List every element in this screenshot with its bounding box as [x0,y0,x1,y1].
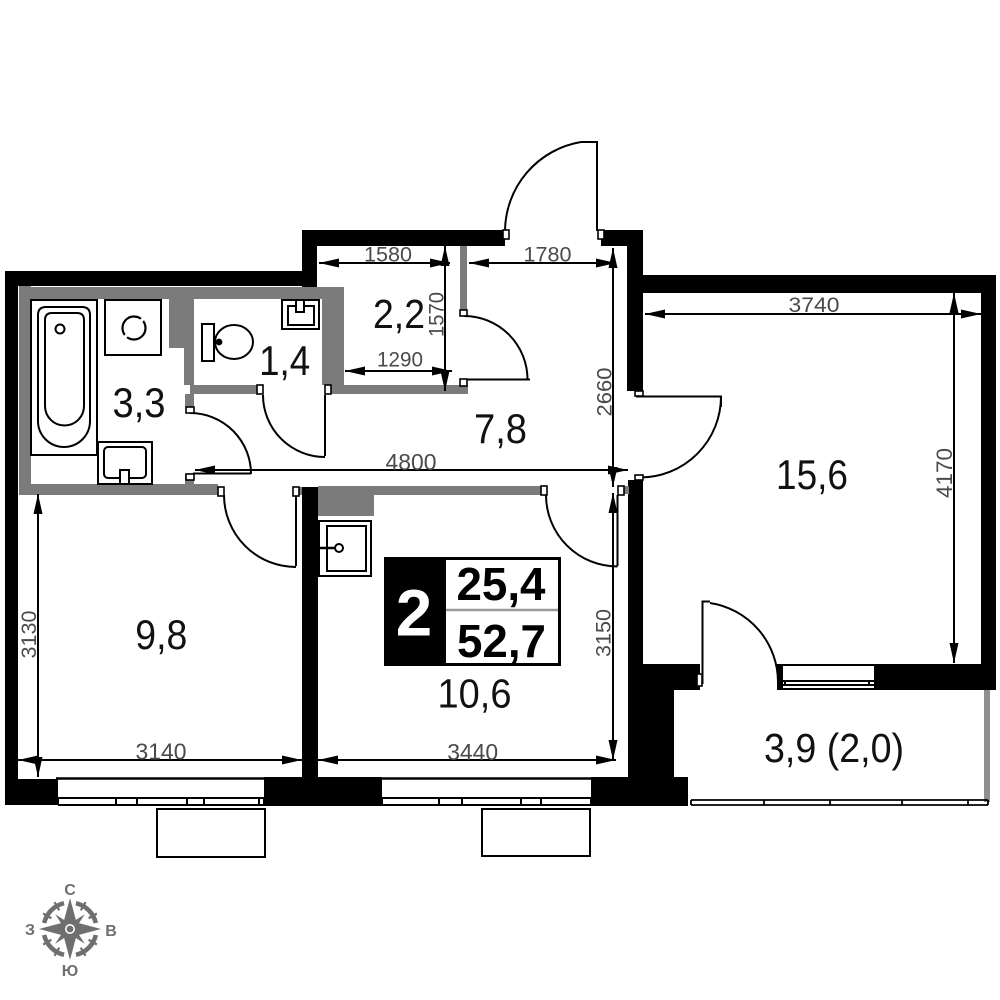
svg-text:С: С [64,882,76,899]
svg-text:15,6: 15,6 [776,451,848,498]
svg-text:2,2: 2,2 [373,291,425,337]
svg-text:10,6: 10,6 [438,671,512,717]
svg-text:3440: 3440 [447,739,498,765]
svg-text:Ю: Ю [62,963,79,980]
svg-text:9,8: 9,8 [135,611,187,658]
svg-text:3,3: 3,3 [113,379,166,426]
svg-text:52,7: 52,7 [457,615,546,667]
svg-text:3140: 3140 [136,739,187,765]
svg-text:7,8: 7,8 [474,405,527,452]
svg-text:1580: 1580 [364,243,412,267]
svg-text:4170: 4170 [932,448,957,498]
svg-text:2: 2 [396,577,432,650]
svg-text:2660: 2660 [593,367,617,416]
svg-text:3740: 3740 [789,293,840,317]
svg-text:25,4: 25,4 [457,558,546,610]
svg-text:В: В [105,923,117,940]
svg-text:1570: 1570 [425,292,449,337]
svg-text:4800: 4800 [386,449,437,475]
svg-text:1780: 1780 [524,243,572,267]
svg-text:1,4: 1,4 [259,337,310,384]
svg-text:3130: 3130 [17,610,41,658]
svg-text:3150: 3150 [592,609,616,657]
svg-text:1290: 1290 [377,348,423,372]
svg-text:3,9 (2,0): 3,9 (2,0) [764,725,904,771]
svg-text:З: З [25,922,35,939]
